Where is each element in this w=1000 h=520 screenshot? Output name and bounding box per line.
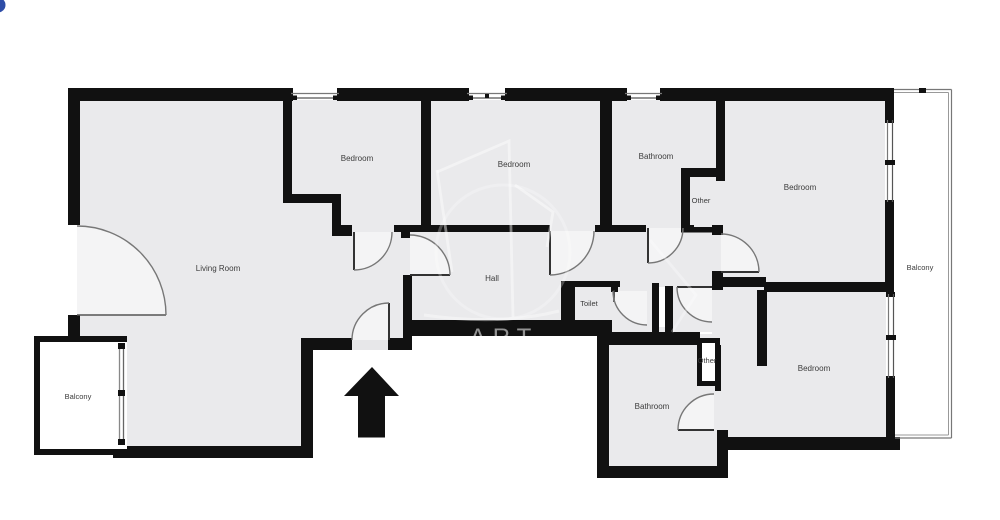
svg-text:ART: ART	[470, 324, 539, 351]
svg-text:Bathroom: Bathroom	[639, 152, 674, 161]
svg-text:Bedroom: Bedroom	[498, 160, 531, 169]
svg-text:Bedroom: Bedroom	[784, 183, 817, 192]
svg-text:Toilet: Toilet	[580, 299, 598, 308]
svg-text:Other: Other	[692, 196, 711, 205]
svg-text:Bedroom: Bedroom	[341, 154, 374, 163]
svg-text:Balcony: Balcony	[907, 263, 934, 272]
svg-text:Balcony: Balcony	[65, 392, 92, 401]
svg-text:Living Room: Living Room	[196, 264, 241, 273]
svg-text:Hall: Hall	[485, 274, 499, 283]
svg-text:Bathroom: Bathroom	[635, 402, 670, 411]
svg-text:Other: Other	[698, 356, 717, 365]
svg-text:Bedroom: Bedroom	[798, 364, 831, 373]
